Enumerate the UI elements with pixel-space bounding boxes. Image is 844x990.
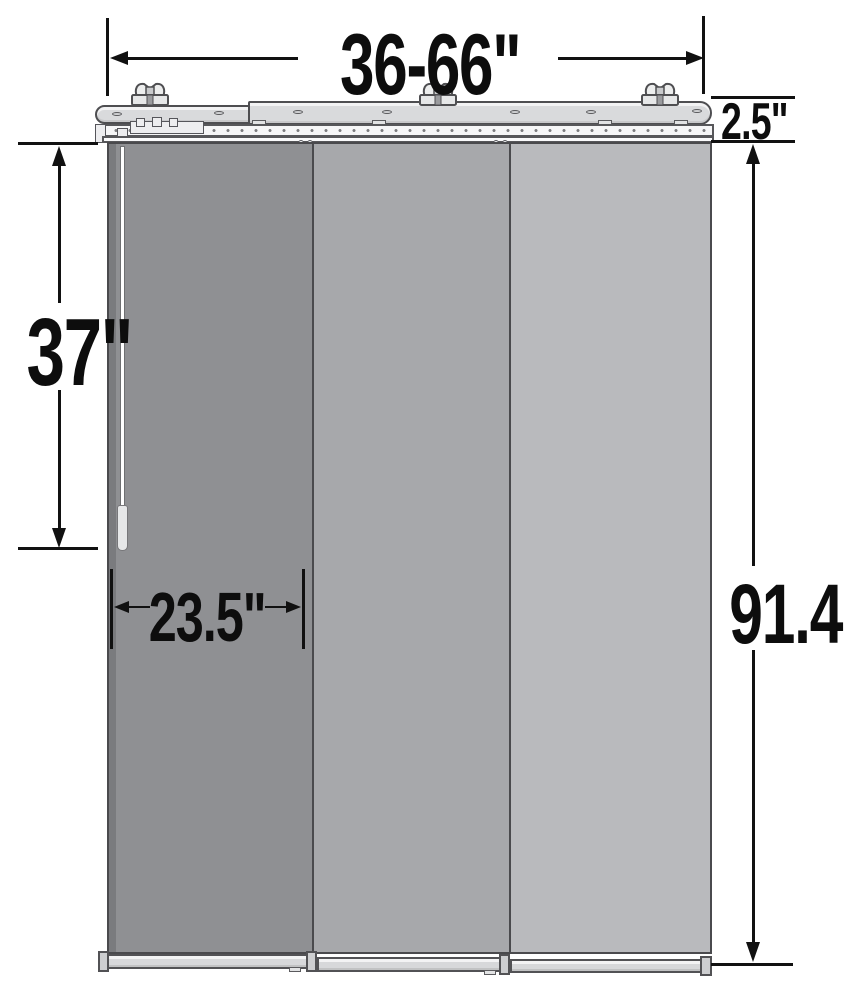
panel-right: [509, 142, 712, 954]
width-arrow-line-left: [126, 57, 298, 60]
width-arrow-line-right: [558, 57, 688, 60]
rail-hole: [692, 109, 702, 113]
bottom-rail-tab: [484, 970, 496, 975]
bottom-rail-end-cap: [499, 954, 510, 975]
height-arrowhead-down: [746, 942, 760, 962]
width-range-label: 36-66": [296, 22, 564, 108]
panel-carrier-clip: [169, 118, 178, 127]
wand-length-label: 37": [6, 305, 114, 401]
bottom-rail-tab: [289, 967, 301, 972]
overall-height-label: 91.4": [702, 572, 826, 656]
rail-hole: [214, 111, 224, 115]
panel-carrier-clip: [152, 117, 162, 127]
wand-arrowhead-down: [52, 528, 66, 548]
height-arrowhead-up: [746, 144, 760, 164]
panel-width-tick-left: [110, 569, 113, 649]
headrail-height-ref-bottom: [711, 140, 795, 143]
panel-carrier-clip: [136, 118, 145, 127]
panel-width-label: 23.5": [125, 582, 290, 652]
bottom-rail-left: [101, 954, 315, 969]
panel-width-tick-right: [302, 569, 305, 649]
height-line-upper: [752, 162, 755, 566]
panel-middle: [312, 142, 511, 954]
wand-line-upper: [58, 164, 61, 303]
width-arrowhead-right: [686, 51, 704, 65]
bottom-rail-middle: [317, 957, 507, 972]
rail-hole: [293, 110, 303, 114]
bottom-rail-end-cap: [98, 951, 109, 972]
panel-track-diagram: 36-66" 2.5" 91.4" 37" 23.5": [0, 0, 844, 990]
rail-hole: [112, 112, 122, 116]
mounting-bracket-icon: [128, 80, 172, 107]
panel-left: [107, 142, 314, 954]
rail-hole: [586, 110, 596, 114]
height-line-lower: [752, 650, 755, 945]
wand-ref-bottom: [18, 547, 98, 550]
bottom-rail-end-cap: [306, 951, 317, 972]
wand-ref-top: [18, 142, 98, 145]
bottom-rail-end-cap: [700, 956, 712, 976]
bottom-rail-right: [510, 959, 702, 973]
height-ref-bottom: [711, 963, 793, 966]
mounting-bracket-icon: [638, 80, 682, 107]
width-extension-line-left: [106, 18, 109, 96]
wand-line-lower: [58, 390, 61, 530]
control-wand-handle: [117, 505, 128, 551]
wand-arrowhead-up: [52, 146, 66, 166]
